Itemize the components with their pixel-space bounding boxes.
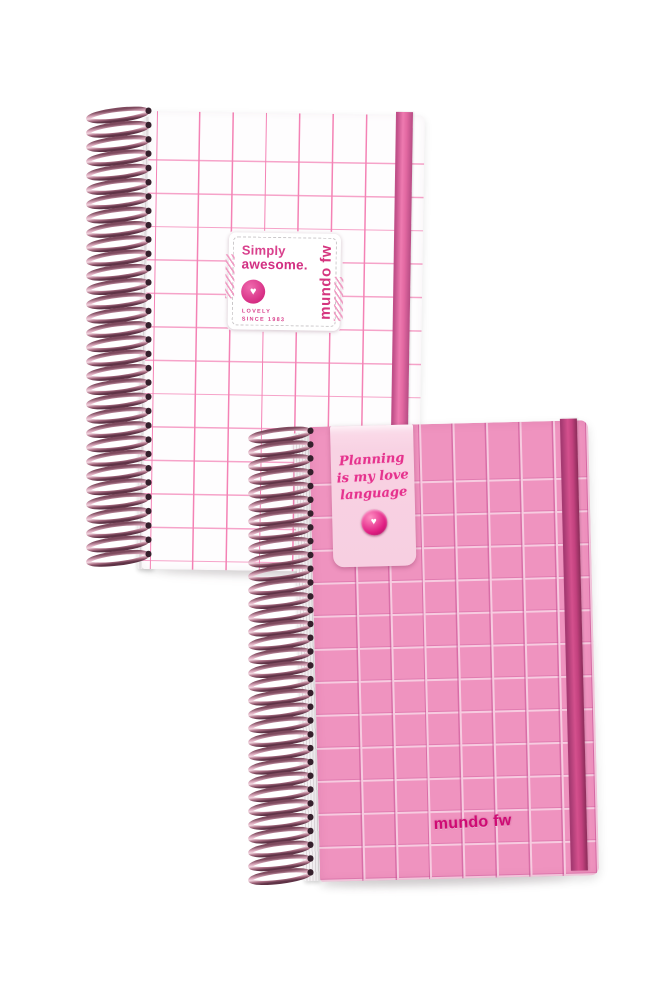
heart-brad-icon: ♥ [361, 509, 388, 536]
zigzag-stitch-icon [225, 254, 235, 298]
brand-logo-vertical: mundo fw [317, 242, 335, 323]
label-title-line2: awesome. [241, 256, 307, 272]
brand-logo: mundo fw [422, 812, 523, 835]
pink-notebook-hang-tag: Planning is my love language ♥ [330, 424, 416, 567]
white-notebook-brand-label: Simply awesome. ♥ LOVELY SINCE 1983 mund… [228, 232, 342, 331]
zigzag-stitch-icon [334, 277, 344, 321]
pink-notebook-cover: Planning is my love language ♥ mundo fw [309, 420, 599, 882]
label-footer-line2: SINCE 1983 [242, 316, 286, 323]
tag-script-line3: language [332, 483, 416, 505]
label-footer-line1: LOVELY [242, 308, 271, 314]
tag-script-text: Planning is my love language [330, 449, 416, 505]
pink-notebook-elastic-band [560, 418, 588, 870]
